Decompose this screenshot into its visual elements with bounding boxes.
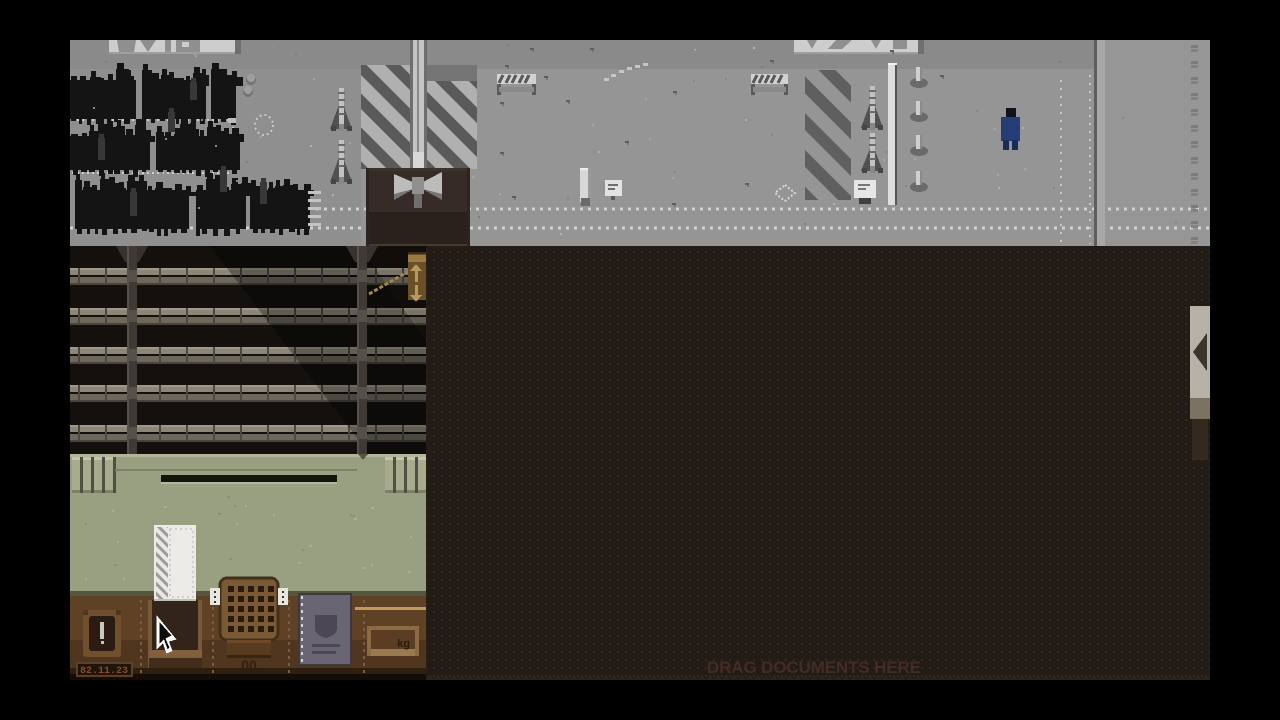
svg-text:00: 00 [241, 657, 257, 673]
svg-text:kg: kg [397, 638, 410, 650]
svg-text:82.11.23: 82.11.23 [80, 666, 128, 677]
svg-text:DRAG DOCUMENTS HERE: DRAG DOCUMENTS HERE [707, 658, 923, 677]
